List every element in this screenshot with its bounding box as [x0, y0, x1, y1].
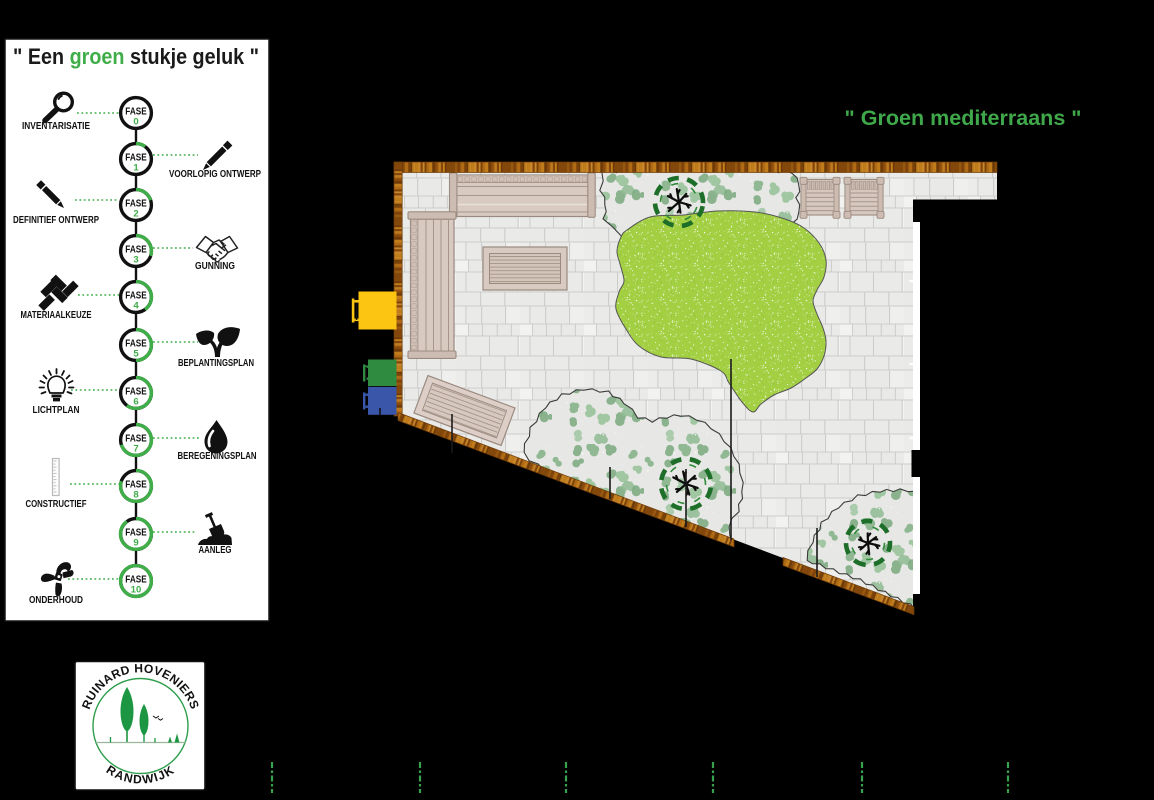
svg-text:CONSTRUCTIEF: CONSTRUCTIEF [26, 499, 87, 510]
svg-text:DEFINITIEF ONTWERP: DEFINITIEF ONTWERP [13, 215, 99, 226]
svg-text:2: 2 [133, 209, 138, 220]
svg-text:9: 9 [133, 538, 138, 549]
svg-text:7: 7 [133, 444, 138, 455]
svg-text:8: 8 [133, 490, 139, 501]
svg-text:" Een groen stukje geluk ": " Een groen stukje geluk " [13, 44, 259, 69]
svg-text:MATERIAALKEUZE: MATERIAALKEUZE [21, 310, 92, 321]
svg-text:LICHTPLAN: LICHTPLAN [33, 405, 80, 416]
svg-text:3: 3 [133, 255, 138, 266]
svg-text:ONDERHOUD: ONDERHOUD [29, 595, 83, 606]
svg-text:BEPLANTINGSPLAN: BEPLANTINGSPLAN [178, 358, 254, 369]
svg-text:" Groen mediterraans ": " Groen mediterraans " [845, 107, 1082, 130]
svg-text:10: 10 [131, 585, 142, 596]
svg-text:INVENTARISATIE: INVENTARISATIE [22, 121, 90, 132]
svg-text:6: 6 [133, 397, 138, 408]
svg-text:GUNNING: GUNNING [195, 261, 235, 272]
svg-text:AANLEG: AANLEG [199, 545, 232, 556]
svg-text:VOORLOPIG ONTWERP: VOORLOPIG ONTWERP [169, 169, 261, 180]
svg-text:4: 4 [133, 301, 139, 312]
svg-text:0: 0 [133, 117, 138, 128]
svg-text:1: 1 [133, 163, 139, 174]
svg-text:5: 5 [133, 349, 139, 360]
